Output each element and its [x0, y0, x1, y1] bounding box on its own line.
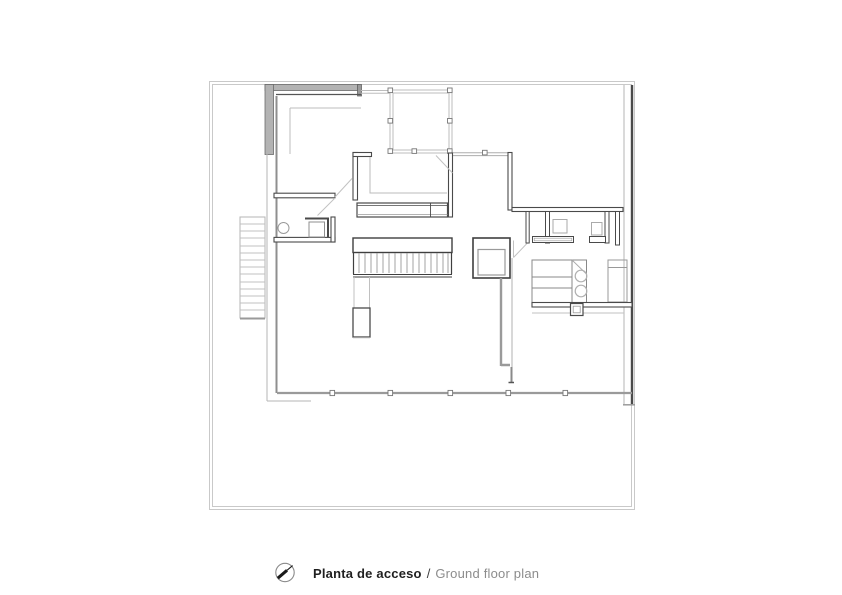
north-arrow-icon [276, 563, 294, 581]
toilet [309, 222, 325, 237]
floor-plan-page: Planta de acceso / Ground floor plan [0, 0, 842, 595]
entry-bathroom [274, 193, 335, 242]
kitchen-island [532, 260, 572, 303]
stair-closet [353, 308, 370, 337]
top-wall-band [265, 85, 359, 91]
middle-room [357, 157, 448, 217]
courtyard [361, 88, 508, 156]
fireplace [473, 238, 510, 278]
door-swing-hall [335, 179, 352, 198]
utility-rooms [526, 212, 620, 246]
bench-right [590, 237, 606, 243]
bathroom-right-wall [331, 217, 335, 242]
door-swing-bathroom [318, 198, 336, 216]
interior-stair [353, 238, 452, 338]
caption-title-primary: Planta de acceso [313, 566, 422, 581]
bathroom-bottom-wall [274, 237, 335, 242]
washbasin [278, 223, 289, 234]
bench-left [533, 237, 574, 243]
column [571, 304, 584, 316]
stair-treads [359, 253, 448, 273]
courtyard-posts [388, 88, 487, 155]
left-wall-band [265, 85, 274, 155]
appliance [553, 220, 567, 234]
caption-separator: / [427, 566, 431, 581]
floor-plan-drawing [0, 0, 842, 595]
room-inner-outline [370, 157, 447, 193]
sink-bowl [575, 270, 587, 282]
stair-landing [353, 238, 452, 253]
porch-glazing [277, 390, 632, 395]
kitchen [532, 260, 632, 316]
bathroom-top-wall [274, 193, 335, 198]
caption-title-secondary: Ground floor plan [435, 566, 539, 581]
caption: Planta de acceso / Ground floor plan [313, 566, 539, 581]
sink-bowl [575, 285, 587, 297]
wc-cistern [592, 223, 603, 236]
exterior-stair [240, 217, 265, 319]
